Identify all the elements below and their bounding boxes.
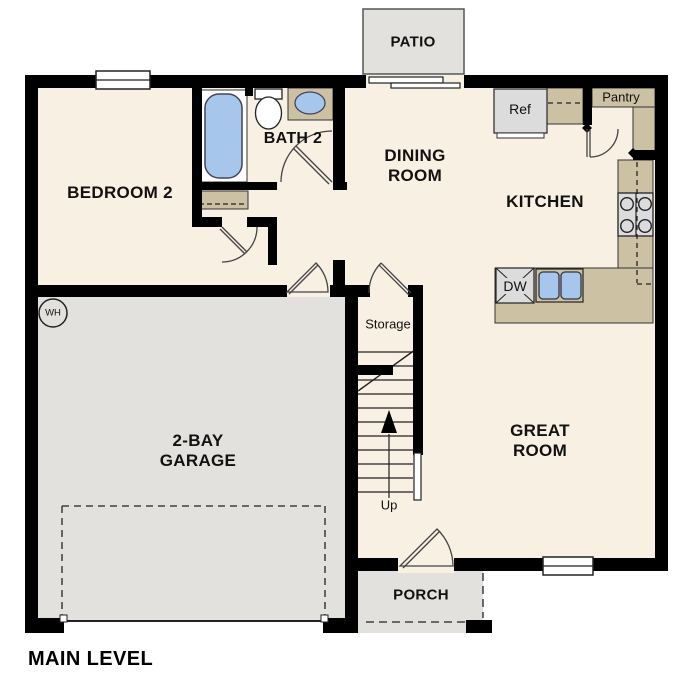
dishwasher-label: DW (502, 278, 527, 294)
bath2-label: BATH 2 (264, 130, 322, 148)
pantry-label: Pantry (602, 90, 640, 105)
plan-title: MAIN LEVEL (28, 648, 153, 671)
wall-greatroom-bottom (593, 558, 668, 571)
handrail (414, 453, 421, 500)
floor-plan-svg (0, 0, 687, 687)
storage-label: Storage (365, 317, 411, 332)
garage-door-jamb (321, 615, 328, 622)
wall-garage-right (345, 285, 358, 633)
stair-mid-wall (357, 365, 393, 375)
patio-slider-panel (369, 77, 443, 83)
patio-slider-panel (391, 83, 460, 88)
great-room-label: GREAT ROOM (490, 421, 590, 461)
wall-garage-top (25, 285, 287, 297)
wall-dining (333, 260, 345, 297)
wall-bedroom-door-stub (192, 217, 222, 227)
toilet-bowl (256, 97, 282, 129)
pantry-shelf-right (633, 107, 655, 152)
wall-left (25, 75, 38, 633)
wall-storage-top (408, 285, 423, 297)
wall-bath-bottom (192, 182, 277, 190)
bedroom2-label: BEDROOM 2 (67, 183, 173, 203)
wall-right (655, 75, 668, 571)
wall-greatroom-bottom (454, 558, 543, 571)
wall-storage-top (358, 285, 370, 297)
kitchen-sink-bowl (539, 272, 559, 299)
dining-room-label: DINING ROOM (365, 146, 465, 186)
wall-bedroom-right (192, 88, 202, 190)
bathroom-sink (295, 92, 325, 114)
refrigerator-front (497, 133, 544, 138)
wall-kitchen-stub (583, 88, 592, 125)
garage-door-jamb (60, 615, 67, 622)
water-heater-label: WH (45, 308, 61, 319)
counter-by-ref (547, 88, 583, 124)
wall-dining (333, 88, 345, 190)
wall-pantry-stub (633, 150, 668, 160)
wall-stair-right (413, 285, 423, 455)
up-label: Up (381, 498, 398, 513)
garage-label: 2-BAY GARAGE (143, 431, 253, 471)
wall-bedroom-door-stub (247, 217, 277, 227)
ref-label: Ref (509, 101, 531, 117)
wall-porch-stub (466, 620, 492, 633)
patio-label: PATIO (390, 34, 435, 51)
bathtub (205, 94, 242, 178)
kitchen-sink-bowl (561, 272, 581, 299)
wall-hall (268, 227, 277, 265)
wall-niche-stub (245, 88, 253, 96)
wall-garage-bottom (25, 618, 64, 633)
floor-plan: PATIO BEDROOM 2 BATH 2 DINING ROOM KITCH… (0, 0, 687, 687)
hall-closet-shelf (197, 191, 248, 209)
porch-label: PORCH (393, 587, 449, 604)
kitchen-label: KITCHEN (506, 192, 584, 212)
